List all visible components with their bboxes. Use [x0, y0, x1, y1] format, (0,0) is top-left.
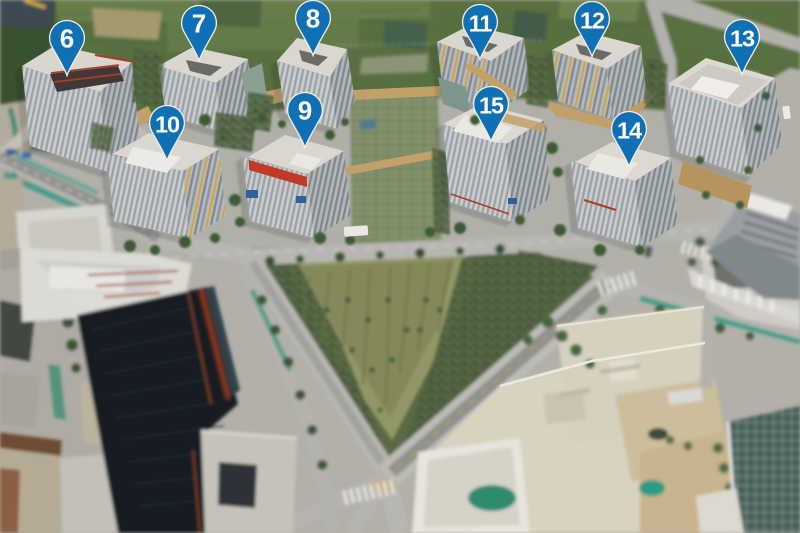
svg-text:12: 12	[580, 8, 605, 34]
svg-text:6: 6	[60, 24, 74, 54]
svg-text:13: 13	[730, 26, 755, 52]
svg-text:10: 10	[155, 112, 180, 138]
svg-text:14: 14	[617, 118, 642, 144]
svg-text:9: 9	[298, 96, 312, 126]
svg-text:15: 15	[479, 93, 504, 119]
svg-text:8: 8	[306, 4, 320, 34]
svg-text:7: 7	[192, 9, 206, 39]
svg-text:11: 11	[469, 11, 493, 37]
